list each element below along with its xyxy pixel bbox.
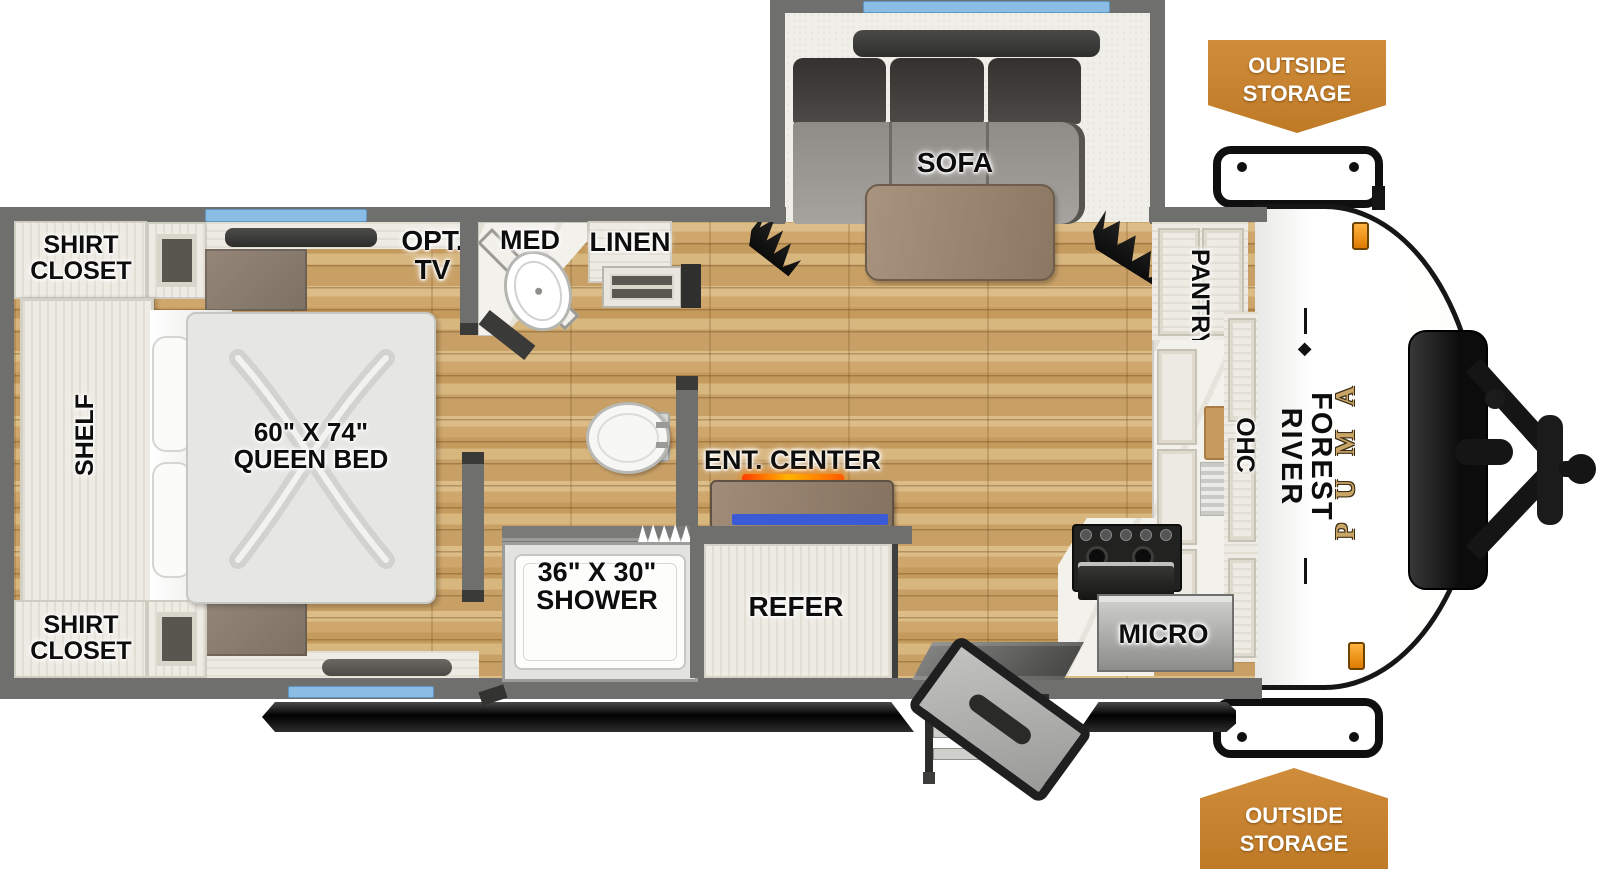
- sofa-backrest: [793, 58, 1081, 124]
- outside-storage-badge-top: OUTSIDE STORAGE: [1208, 40, 1386, 133]
- brand-name: FOREST RIVER: [1276, 364, 1336, 549]
- dresser-top: [147, 222, 207, 299]
- frame-post: [1372, 186, 1385, 210]
- shirt-closet-bottom-label: SHIRTCLOSET: [18, 612, 144, 664]
- dinette-table: [865, 184, 1055, 281]
- shower-wall-left: [462, 452, 484, 602]
- model-name-wrap: PUMA: [1330, 349, 1360, 553]
- opt-tv-label: OPT.TV: [395, 226, 470, 284]
- shirt-closet-top-label: SHIRTCLOSET: [18, 232, 144, 284]
- wall-left: [0, 207, 14, 699]
- shower-label: 36" X 30"SHOWER: [508, 558, 686, 614]
- ent-center-blue-strip: [732, 514, 888, 525]
- slideout-wall-left: [770, 0, 785, 224]
- linen-corner-block: [681, 264, 701, 308]
- storage-top-line1: OUTSIDE: [1208, 52, 1386, 80]
- awning-roller-right: [1078, 702, 1236, 732]
- refer-wall-top: [690, 526, 912, 544]
- bedroom-window-top: [205, 209, 367, 222]
- ent-center-label: ENT. CENTER: [700, 446, 885, 474]
- linen-label: LINEN: [588, 228, 672, 256]
- storage-top-line2: STORAGE: [1208, 80, 1386, 108]
- storage-bottom-line2: STORAGE: [1200, 830, 1388, 858]
- logo-dash-icon: [1305, 308, 1308, 334]
- floorplan-canvas: ◆ FOREST RIVER PUMA OUTSIDE STORAGE OUTS…: [0, 0, 1600, 869]
- queen-bed-mattress: 60" X 74"QUEEN BED: [186, 312, 436, 604]
- clearance-light-top: [1352, 222, 1369, 250]
- wall-top-right: [1149, 207, 1267, 222]
- ohc-label: OHC: [1232, 400, 1258, 490]
- queen-bed-label: 60" X 74"QUEEN BED: [188, 419, 434, 473]
- logo-dash-icon: [1305, 558, 1308, 584]
- bolster: [322, 659, 452, 676]
- sofa-label: SOFA: [905, 148, 1005, 177]
- forest-river-shield-icon: ◆: [1296, 342, 1317, 356]
- frame-rail-top: [1213, 146, 1383, 208]
- storage-bottom-line1: OUTSIDE: [1200, 802, 1388, 830]
- shelf-label: SHELF: [72, 380, 98, 490]
- slideout-tv: [853, 30, 1100, 57]
- nightstand-bottom: [205, 596, 307, 656]
- frame-rail-bottom: [1213, 698, 1383, 758]
- hitch-a-frame: [1455, 335, 1600, 585]
- toilet: [586, 402, 676, 468]
- wall-top-left: [0, 207, 786, 222]
- nightstand-top: [205, 249, 307, 311]
- model-name: PUMA: [1330, 363, 1360, 540]
- refer-wall-left: [690, 526, 704, 678]
- awning-roller: [262, 702, 914, 732]
- outside-storage-badge-bottom: OUTSIDE STORAGE: [1200, 768, 1388, 869]
- bedroom-tv: [225, 228, 377, 247]
- bath-wall-vanity: [460, 207, 480, 335]
- clearance-light-bottom: [1348, 642, 1365, 670]
- brand-logo: ◆ FOREST RIVER: [1288, 308, 1324, 584]
- med-label: MED: [492, 226, 568, 254]
- dresser-bottom: [147, 600, 207, 678]
- bath-wall-right: [676, 376, 698, 534]
- slideout-window: [863, 1, 1110, 13]
- bedroom-window-bottom: [288, 686, 434, 698]
- slideout-wall-right: [1150, 0, 1165, 224]
- refer-label: REFER: [704, 592, 888, 621]
- linen-drawers: [602, 266, 682, 308]
- micro-label: MICRO: [1097, 620, 1230, 648]
